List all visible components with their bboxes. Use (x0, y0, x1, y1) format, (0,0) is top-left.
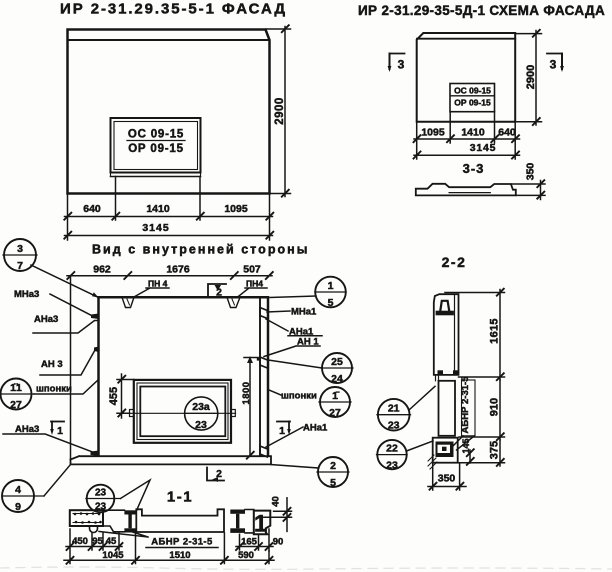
svg-text:шпонки: шпонки (36, 384, 72, 395)
svg-text:27: 27 (10, 399, 22, 411)
svg-text:шпонки: шпонки (281, 391, 317, 402)
svg-text:4: 4 (15, 484, 21, 496)
svg-text:9: 9 (15, 501, 21, 513)
svg-text:1800: 1800 (241, 381, 252, 404)
svg-text:23: 23 (95, 488, 107, 499)
svg-text:1: 1 (254, 511, 267, 538)
svg-text:375: 375 (489, 441, 501, 459)
svg-text:Вид с внутренней стороны: Вид с внутренней стороны (92, 243, 308, 257)
svg-text:1510: 1510 (169, 550, 190, 561)
svg-text:90: 90 (273, 537, 284, 548)
svg-text:3: 3 (17, 243, 23, 255)
svg-text:5: 5 (330, 477, 336, 489)
svg-text:145: 145 (461, 438, 471, 453)
svg-text:3: 3 (550, 58, 557, 72)
svg-text:ОР 09-15: ОР 09-15 (128, 143, 184, 155)
svg-text:1410: 1410 (146, 203, 170, 215)
svg-text:590: 590 (238, 550, 254, 561)
svg-text:МНа3: МНа3 (14, 289, 39, 300)
svg-text:2900: 2900 (274, 97, 286, 125)
svg-text:ИР 2-31.29.35-5-1 ФАСАД: ИР 2-31.29.35-5-1 ФАСАД (60, 1, 286, 18)
svg-text:1: 1 (279, 425, 285, 437)
svg-text:22: 22 (386, 443, 398, 455)
svg-text:АНа3: АНа3 (34, 314, 58, 325)
svg-text:24: 24 (331, 373, 343, 385)
svg-text:3145: 3145 (142, 222, 169, 234)
svg-text:2900: 2900 (525, 65, 537, 89)
svg-text:АБНР 2-31-5: АБНР 2-31-5 (151, 537, 213, 548)
svg-text:МНа1: МНа1 (291, 307, 317, 318)
svg-text:2: 2 (330, 460, 336, 472)
svg-text:450: 450 (72, 536, 88, 547)
svg-text:3145: 3145 (470, 142, 497, 154)
svg-text:23а: 23а (192, 401, 210, 413)
svg-text:2: 2 (216, 468, 222, 480)
svg-text:640: 640 (498, 127, 516, 139)
svg-text:23: 23 (386, 460, 398, 472)
svg-text:ПН4: ПН4 (246, 279, 263, 289)
svg-text:962: 962 (93, 264, 111, 276)
svg-text:1̈1: 1̈1 (10, 382, 22, 394)
svg-text:455: 455 (108, 387, 120, 405)
svg-text:21: 21 (388, 403, 400, 415)
svg-text:165: 165 (241, 537, 258, 548)
svg-text:3-3: 3-3 (463, 161, 485, 176)
svg-text:ИР 2-31.29-35-5Д-1 СХЕМА ФАСАД: ИР 2-31.29-35-5Д-1 СХЕМА ФАСАДА (358, 3, 605, 18)
svg-text:350: 350 (525, 163, 537, 181)
svg-text:23: 23 (388, 420, 400, 432)
svg-text:1: 1 (328, 280, 334, 292)
svg-text:1095: 1095 (224, 203, 248, 215)
svg-text:1615: 1615 (489, 318, 501, 344)
svg-text:507: 507 (243, 264, 261, 276)
svg-text:45: 45 (106, 536, 117, 547)
svg-text:ОР 09-15: ОР 09-15 (454, 98, 491, 108)
svg-text:95: 95 (92, 536, 103, 547)
svg-text:ПН 4: ПН 4 (148, 279, 168, 289)
svg-text:350: 350 (438, 473, 456, 485)
svg-text:40: 40 (271, 496, 282, 507)
svg-text:7: 7 (17, 260, 23, 272)
svg-text:АНа1: АНа1 (303, 423, 328, 434)
svg-text:АБНР 2-31-5: АБНР 2-31-5 (460, 376, 471, 434)
svg-text:ОС 09-15: ОС 09-15 (128, 129, 184, 141)
svg-text:1410: 1410 (461, 127, 485, 139)
svg-text:ОС 09-15: ОС 09-15 (454, 86, 491, 96)
svg-text:1676: 1676 (166, 264, 190, 276)
svg-text:АН 3: АН 3 (41, 359, 63, 370)
svg-text:25: 25 (331, 356, 343, 368)
svg-text:1: 1 (57, 425, 63, 437)
svg-text:640: 640 (83, 203, 101, 215)
svg-text:2-2: 2-2 (442, 254, 467, 270)
svg-text:3: 3 (398, 58, 405, 72)
svg-text:1-1: 1-1 (167, 489, 193, 506)
svg-text:1095: 1095 (421, 127, 445, 139)
svg-text:910: 910 (489, 398, 501, 416)
svg-text:27: 27 (329, 407, 341, 419)
svg-text:1045: 1045 (102, 550, 124, 561)
svg-text:23: 23 (195, 419, 207, 431)
svg-text:5: 5 (328, 297, 334, 309)
